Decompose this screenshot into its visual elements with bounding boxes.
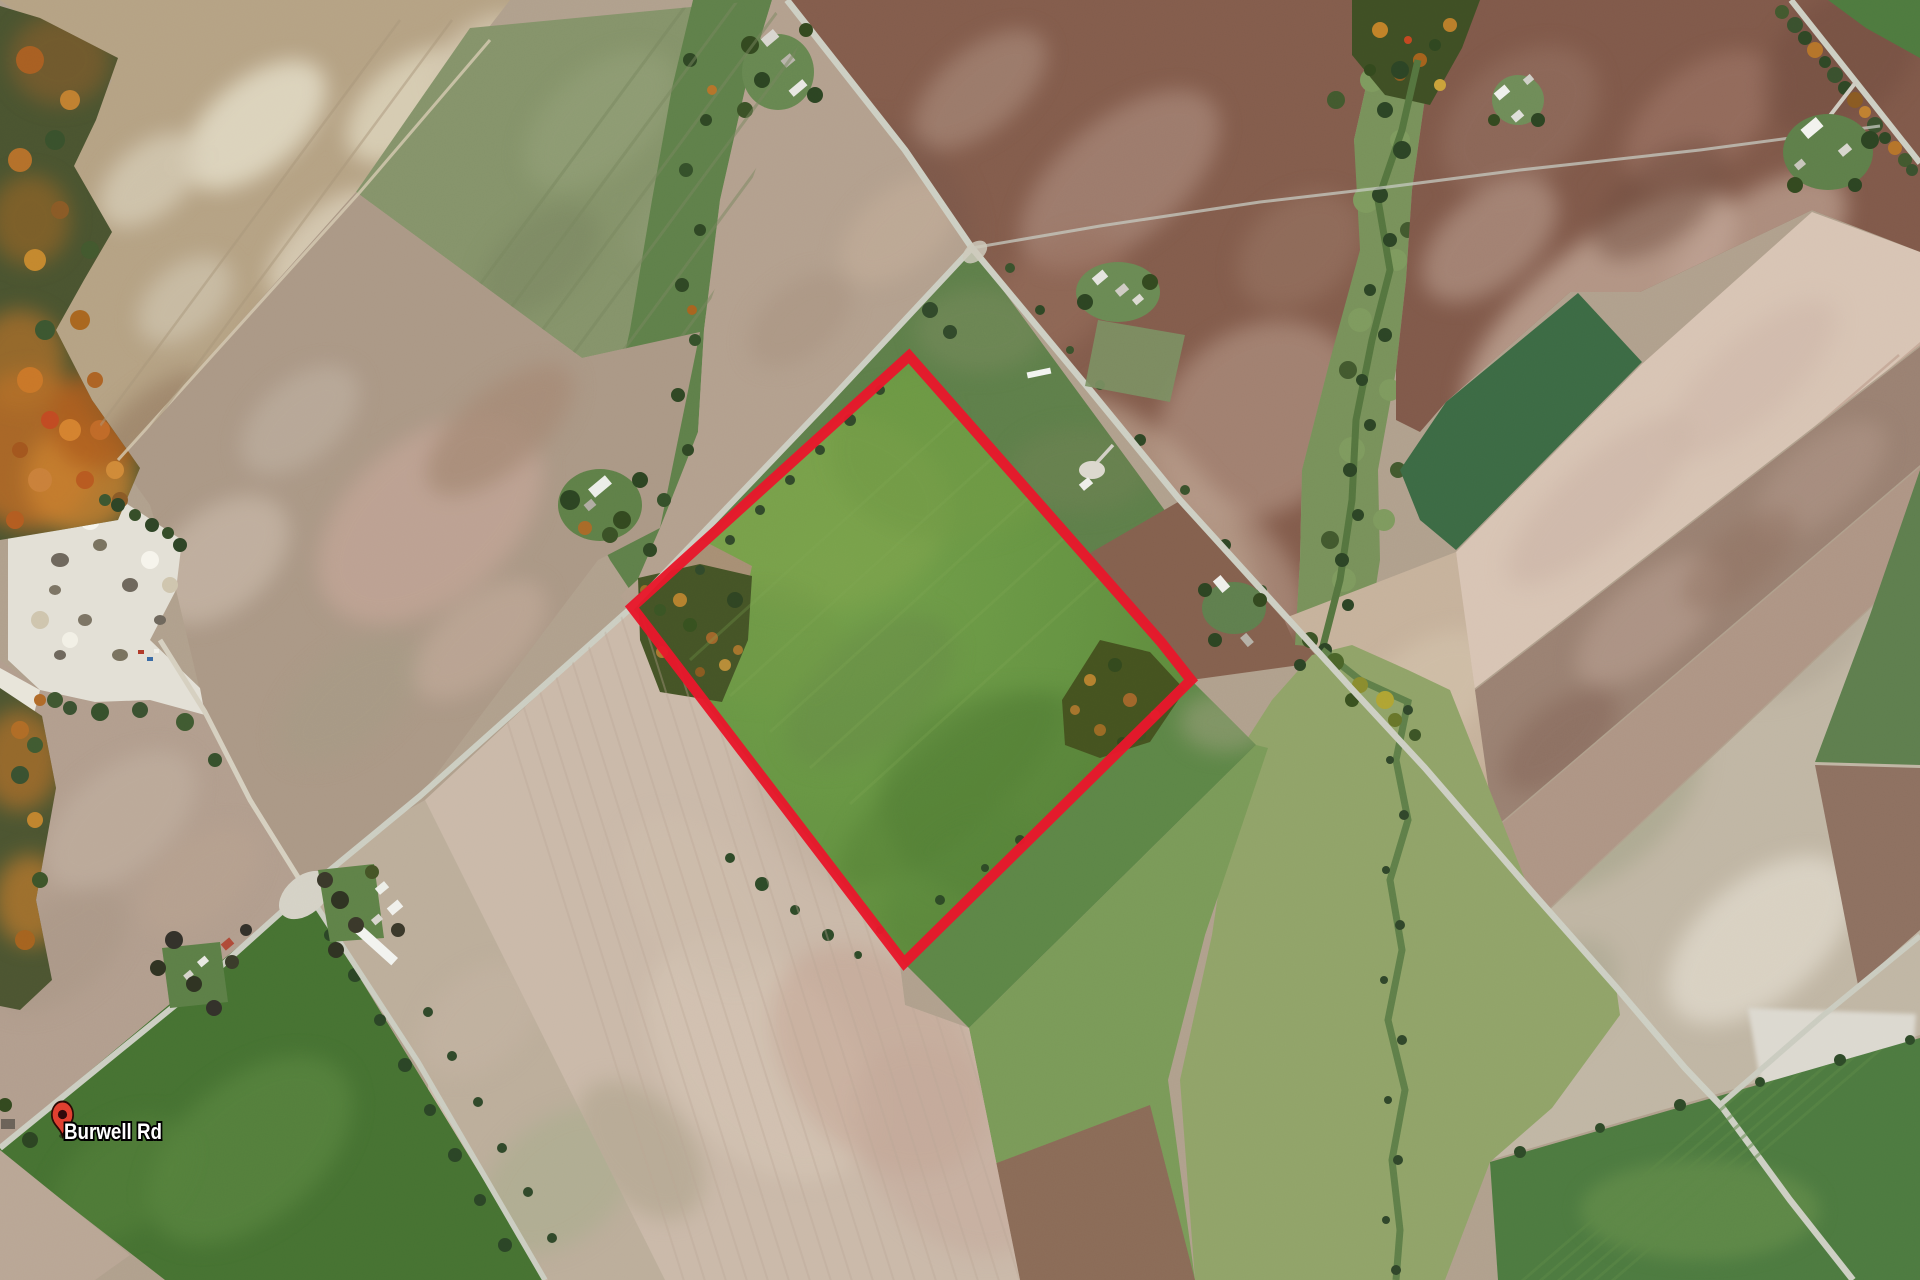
svg-text:Burwell Rd: Burwell Rd (64, 1119, 162, 1144)
